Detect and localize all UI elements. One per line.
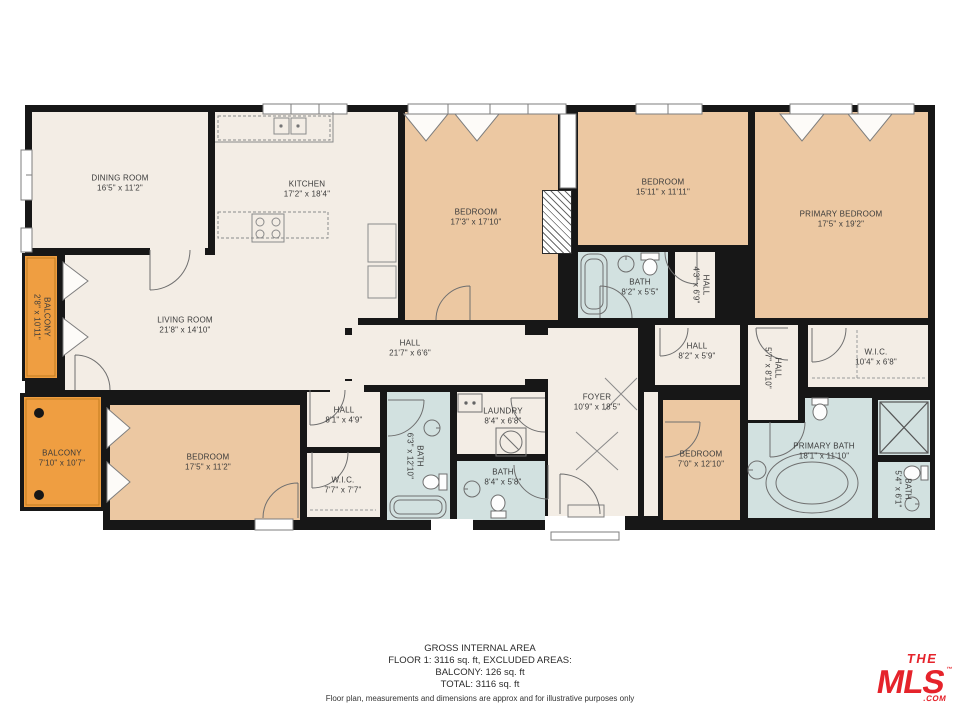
label-foyer: FOYER10'9" x 18'5" [574, 393, 620, 414]
room-hall-main [352, 325, 525, 385]
entry-porch-notch [545, 516, 625, 540]
label-primary-bedroom: PRIMARY BEDROOM17'5" x 19'2" [800, 210, 883, 231]
label-hall-small-top: HALL4'3" x 6'9" [690, 266, 711, 303]
room-shower [878, 400, 930, 455]
opening-kitchen-hall [300, 314, 358, 328]
label-wic-right: W.I.C.10'4" x 6'8" [855, 348, 897, 369]
label-bedroom1: BEDROOM17'3" x 17'10" [450, 208, 501, 229]
label-bedroom3: BEDROOM17'5" x 11'2" [185, 453, 231, 474]
label-bath-small: BATH5'4" x 6'1" [892, 470, 913, 507]
themls-logo: THE MLS ™ .COM [874, 652, 955, 703]
label-hall-bottom: HALL8'1" x 4'9" [325, 406, 362, 427]
opening-hall-foyer [520, 335, 552, 379]
label-bedroom2: BEDROOM15'11" x 11'11" [636, 178, 690, 199]
chimney-hatch [542, 190, 572, 254]
summary-title: GROSS INTERNAL AREA [0, 643, 960, 655]
label-living: LIVING ROOM21'8" x 14'10" [157, 316, 213, 337]
area-summary: GROSS INTERNAL AREA FLOOR 1: 3116 sq. ft… [0, 643, 960, 704]
label-hall-right: HALL8'2" x 5'9" [678, 342, 715, 363]
label-bedroom4: BEDROOM7'0" x 12'10" [678, 450, 724, 471]
label-balcony-bottom: BALCONY7'10" x 10'7" [39, 449, 85, 470]
label-bath-vert: BATH6'3" x 12'10" [404, 433, 425, 479]
opening-living-hall [338, 335, 356, 379]
rear-door-notch [431, 519, 473, 530]
room-primary-bath [748, 423, 872, 518]
label-dining: DINING ROOM16'5" x 11'2" [91, 174, 148, 195]
label-laundry: LAUNDRY8'4" x 6'8" [483, 407, 523, 428]
label-bath-top: BATH8'2" x 5'5" [621, 278, 658, 299]
room-foyer [548, 328, 638, 516]
label-primary-bath: PRIMARY BATH18'1" x 11'10" [793, 442, 855, 463]
label-hall-main: HALL21'7" x 6'6" [389, 339, 431, 360]
label-bath-bottom: BATH8'4" x 5'8" [484, 468, 521, 489]
label-hall-vert: HALL5'7" x 8'10" [762, 347, 783, 389]
room-foyer-closet [644, 392, 658, 516]
summary-total: TOTAL: 3116 sq. ft [0, 679, 960, 691]
summary-balcony: BALCONY: 126 sq. ft [0, 667, 960, 679]
floorplan-page: { "colors": { "wall": "#171717", "room_c… [0, 0, 960, 720]
label-wic-bottom: W.I.C.7'7" x 7'7" [324, 476, 361, 497]
summary-floor1: FLOOR 1: 3116 sq. ft, EXCLUDED AREAS: [0, 655, 960, 667]
room-primary-bath-ext [805, 398, 872, 428]
opening-dining-living [150, 244, 205, 258]
summary-disclaimer: Floor plan, measurements and dimensions … [0, 694, 960, 704]
opening-hall-hallb [330, 381, 364, 395]
label-kitchen: KITCHEN17'2" x 18'4" [284, 180, 330, 201]
logo-tm: ™ [945, 667, 952, 673]
label-balcony-left: BALCONY2'8" x 10'11" [31, 294, 52, 340]
